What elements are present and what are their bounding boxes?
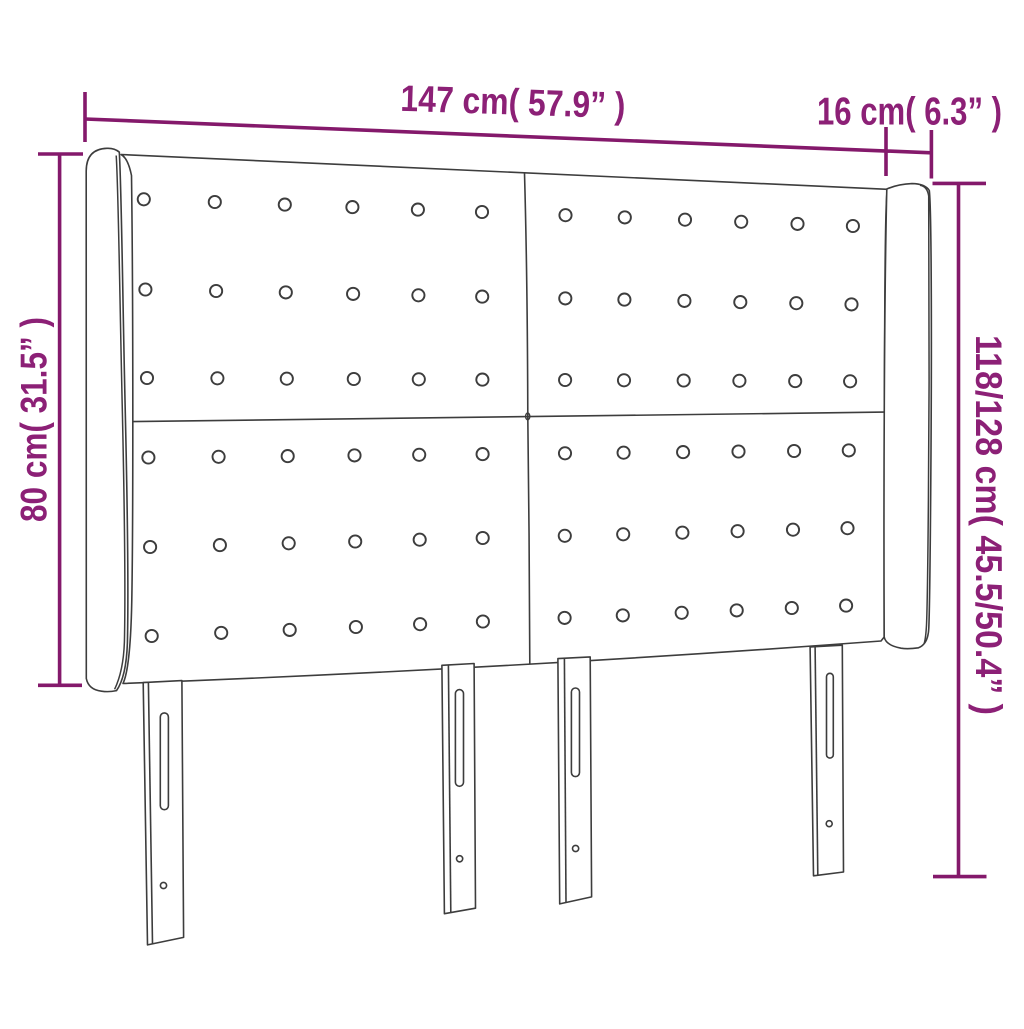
svg-text:16 cm( 6.3” ): 16 cm( 6.3” ) — [817, 91, 1002, 134]
svg-text:80 cm( 31.5” ): 80 cm( 31.5” ) — [14, 317, 55, 522]
svg-text:118/128 cm( 45.5/50.4” ): 118/128 cm( 45.5/50.4” ) — [968, 335, 1009, 715]
svg-text:147 cm( 57.9” ): 147 cm( 57.9” ) — [400, 78, 626, 126]
